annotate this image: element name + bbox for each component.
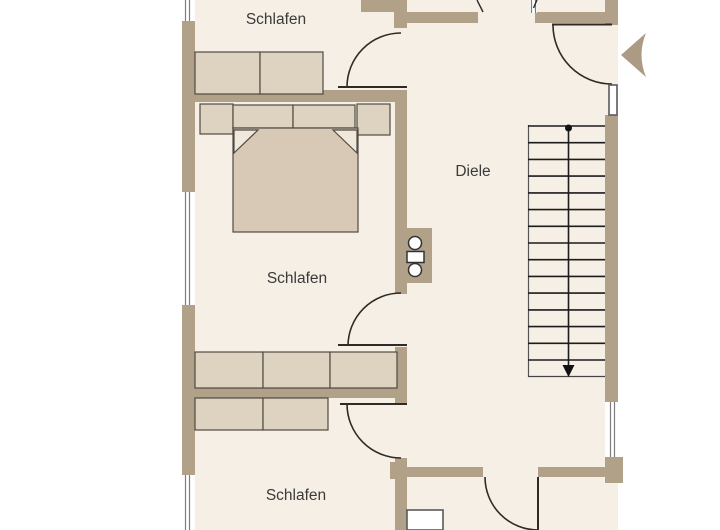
wall-middle-bottom-divider (186, 388, 404, 398)
sofa-segment (260, 52, 323, 94)
door-panel-bottom-room (407, 510, 443, 530)
entrance-arrow-icon (621, 33, 646, 77)
wardrobe-segment (195, 352, 263, 388)
double-bed (233, 128, 358, 232)
room-label-schlafen-bottom: Schlafen (266, 487, 326, 504)
right-wall (605, 115, 618, 402)
window-left-top-icon (182, 0, 195, 21)
bottom-room-wall-left (404, 467, 483, 477)
headboard-segment (233, 105, 293, 128)
left-wall-upper (182, 21, 195, 192)
installation-symbols (407, 237, 424, 277)
floorplan-svg: Schlafen Schlafen Schlafen Diele (0, 0, 720, 530)
top-door-pillar (394, 0, 407, 28)
wardrobe-segment (195, 398, 263, 430)
room-label-schlafen-middle: Schlafen (267, 270, 327, 287)
window-left-middle-icon (182, 192, 195, 305)
outlet-rect-icon (407, 252, 424, 263)
nightstand-right (357, 104, 390, 135)
window-left-bottom-icon (182, 475, 195, 530)
stair-direction-start-dot (565, 125, 572, 132)
wardrobe-segment (263, 398, 328, 430)
room-label-diele: Diele (455, 163, 490, 180)
wardrobe-segment (263, 352, 330, 388)
top-wall-right-piece (535, 12, 607, 23)
door-panel-right-wall (609, 85, 617, 115)
room-label-schlafen-top: Schlafen (246, 11, 306, 28)
top-wall-left-piece (361, 0, 397, 12)
window-right-icon (605, 402, 618, 457)
top-right-corner-block (605, 0, 618, 25)
outlet-circle-icon (409, 264, 422, 277)
top-wall-mid-piece (407, 12, 478, 23)
bottom-room-wall-right (538, 467, 608, 477)
headboard-segment (293, 105, 355, 128)
sofa-segment (195, 52, 260, 94)
floorplan-screenshot: Schlafen Schlafen Schlafen Diele (0, 0, 720, 530)
outlet-circle-icon (409, 237, 422, 250)
wardrobe-segment (330, 352, 397, 388)
nightstand-left (200, 104, 233, 134)
